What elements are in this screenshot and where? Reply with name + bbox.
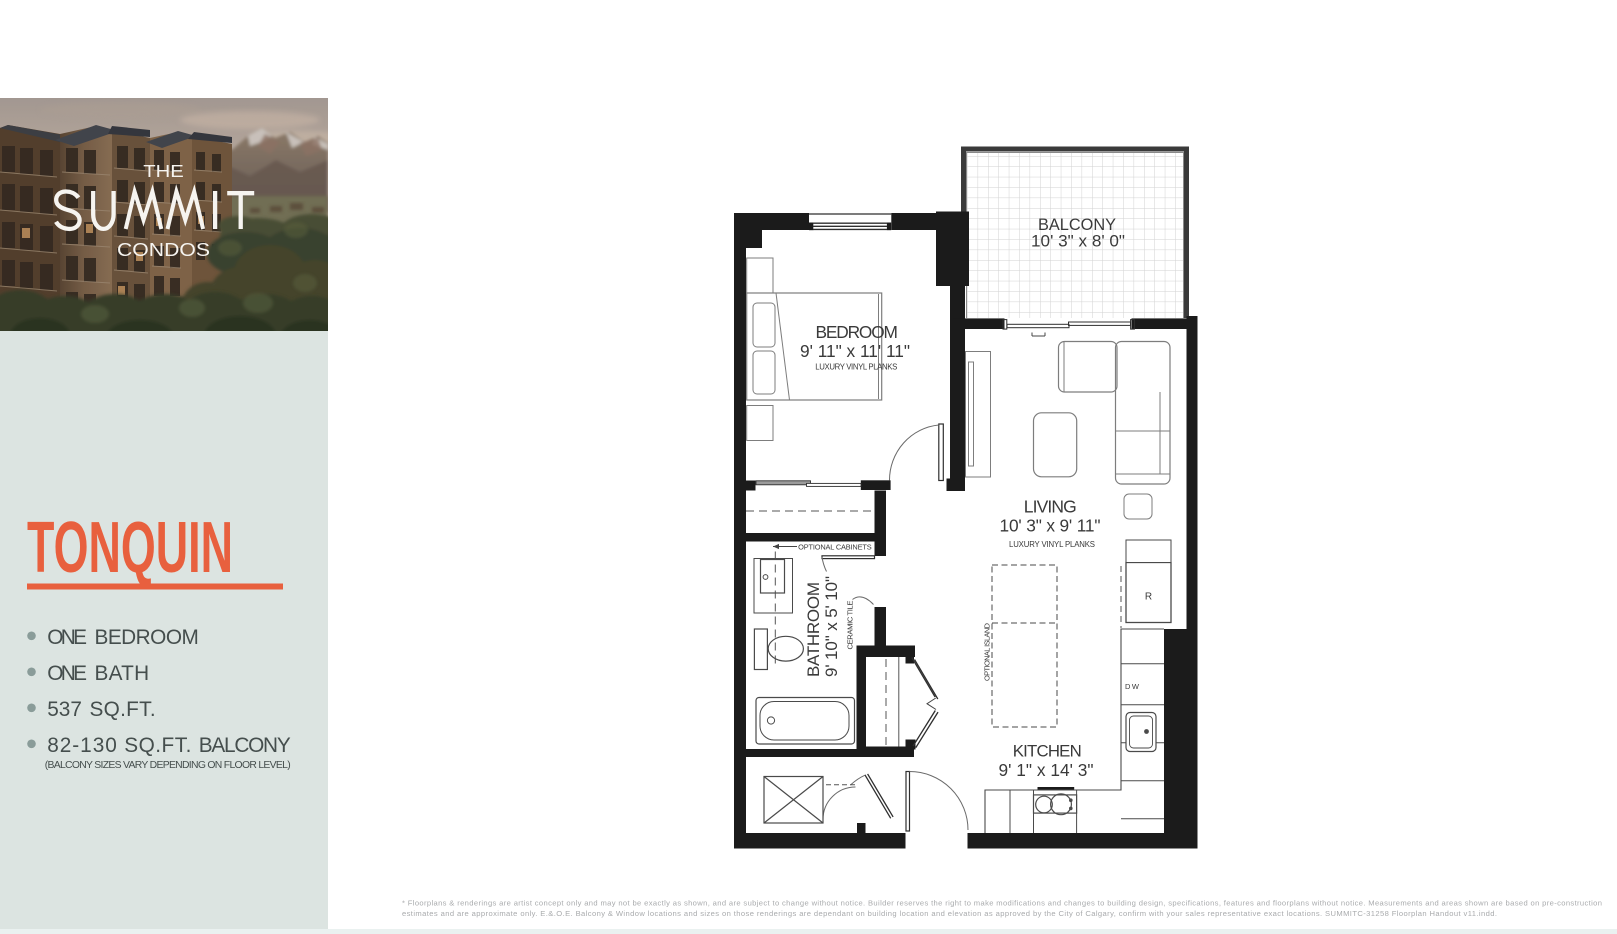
svg-text:OPTIONAL ISLAND: OPTIONAL ISLAND xyxy=(982,623,991,681)
svg-text:9' 1" x 14' 3": 9' 1" x 14' 3" xyxy=(999,760,1094,780)
svg-text:BATHROOM: BATHROOM xyxy=(804,582,823,677)
svg-text:BATH: BATH xyxy=(95,662,150,685)
svg-text:DW: DW xyxy=(1125,682,1140,691)
svg-text:CERAMIC TILE: CERAMIC TILE xyxy=(846,601,855,650)
svg-text:BEDROOM: BEDROOM xyxy=(815,322,898,342)
svg-text:537: 537 xyxy=(47,698,82,721)
svg-text:LIVING: LIVING xyxy=(1024,497,1077,517)
svg-text:10' 3" x 8' 0": 10' 3" x 8' 0" xyxy=(1031,233,1125,251)
svg-text:SQ.FT.: SQ.FT. xyxy=(90,698,156,721)
svg-text:9' 10" x 5' 10": 9' 10" x 5' 10" xyxy=(822,576,841,677)
svg-text:KITCHEN: KITCHEN xyxy=(1013,741,1082,760)
svg-text:estimates and are approximate: estimates and are approximate only. E.&.… xyxy=(402,909,1497,918)
svg-text:TONQUIN: TONQUIN xyxy=(27,507,233,588)
svg-text:LUXURY VINYL PLANKS: LUXURY VINYL PLANKS xyxy=(1009,540,1095,549)
svg-text:SQ.FT.: SQ.FT. xyxy=(124,734,191,757)
svg-text:BALCONY: BALCONY xyxy=(1038,216,1116,234)
svg-text:* Floorplans & renderings are: * Floorplans & renderings are artist con… xyxy=(402,898,1602,907)
svg-text:BALCONY: BALCONY xyxy=(199,734,291,757)
svg-text:LUXURY VINYL PLANKS: LUXURY VINYL PLANKS xyxy=(815,363,897,372)
svg-text:9' 11" x 11' 11": 9' 11" x 11' 11" xyxy=(800,341,910,361)
svg-text:(BALCONY SIZES VARY DEPENDING: (BALCONY SIZES VARY DEPENDING ON FLOOR L… xyxy=(45,760,291,771)
svg-text:ONE: ONE xyxy=(47,626,87,649)
svg-text:R: R xyxy=(1145,592,1152,603)
svg-text:ONE: ONE xyxy=(47,662,87,685)
svg-text:10' 3" x 9' 11": 10' 3" x 9' 11" xyxy=(1000,516,1101,536)
svg-text:OPTIONAL CABINETS: OPTIONAL CABINETS xyxy=(798,543,872,552)
svg-text:82-130: 82-130 xyxy=(47,734,117,757)
svg-text:BEDROOM: BEDROOM xyxy=(95,626,199,649)
